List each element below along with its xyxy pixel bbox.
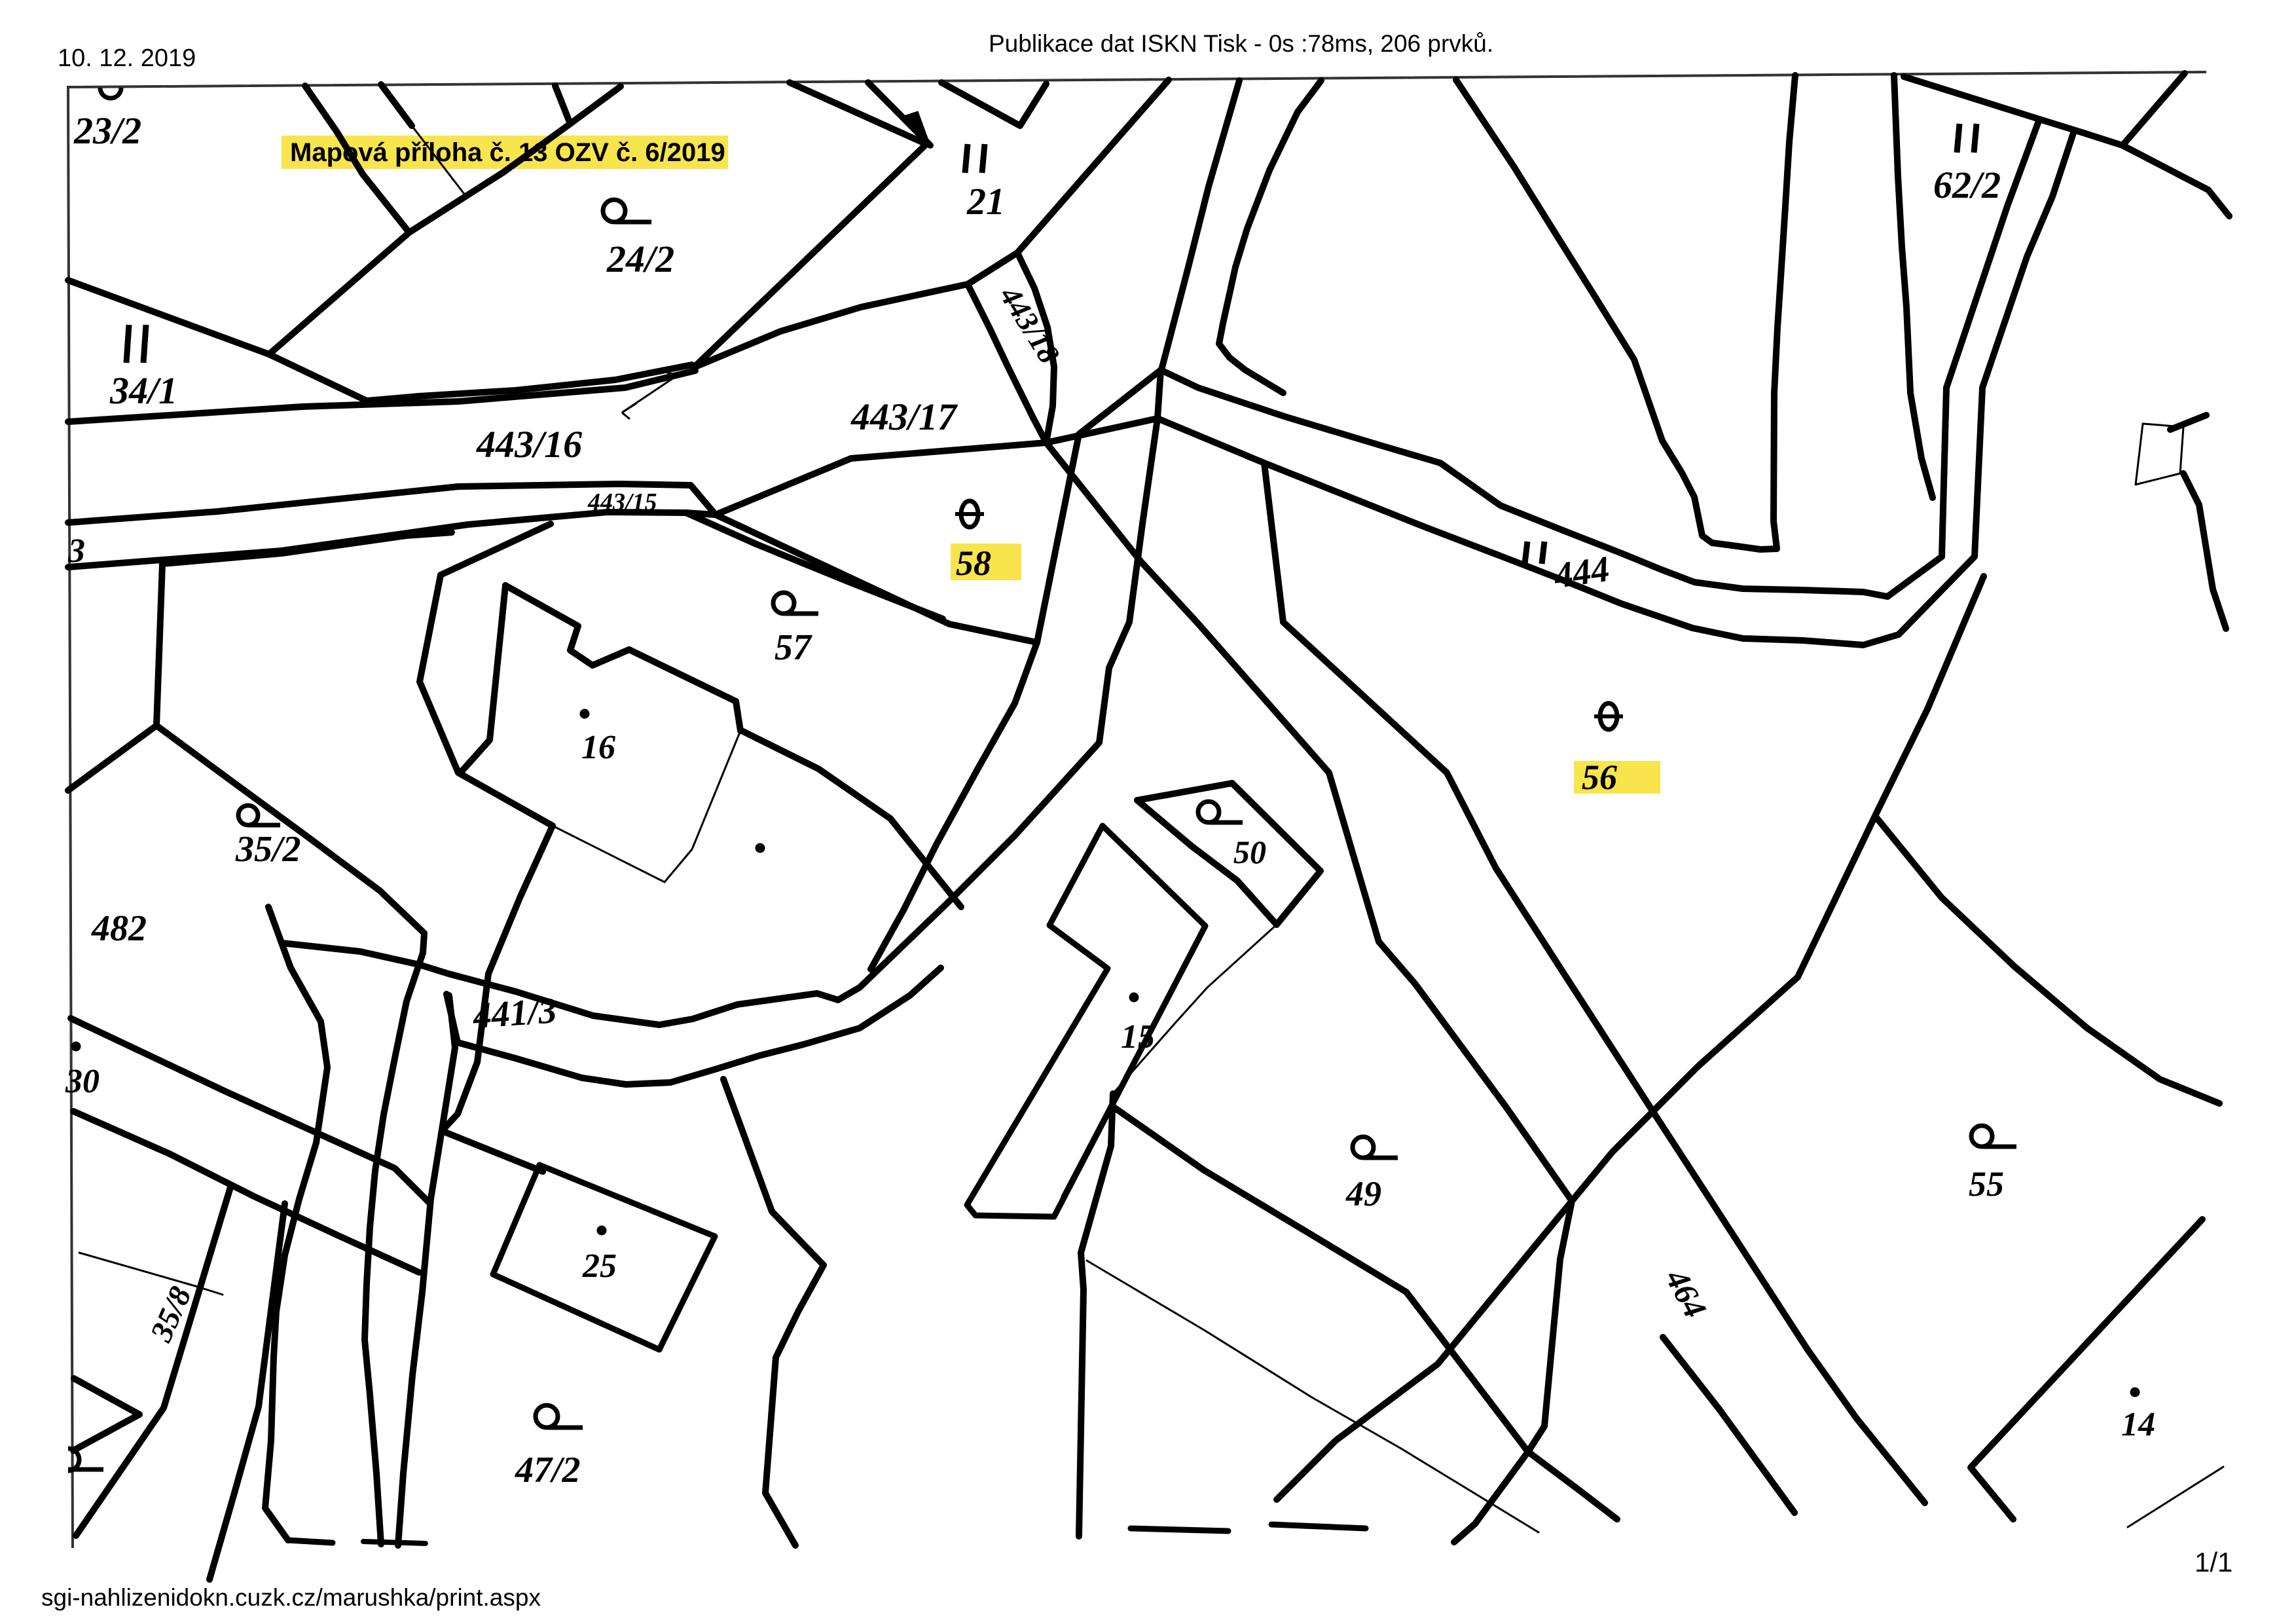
svg-text:30: 30 [65,1063,100,1100]
svg-text:15: 15 [1121,1018,1155,1056]
svg-text:444: 444 [1551,549,1612,597]
svg-text:24/2: 24/2 [606,238,674,280]
svg-text:482: 482 [91,908,147,949]
svg-text:57: 57 [774,627,812,668]
svg-text:47/2: 47/2 [515,1450,581,1490]
svg-text:443/15: 443/15 [587,489,657,516]
svg-text:25: 25 [582,1247,617,1285]
svg-text:10. 12. 2019: 10. 12. 2019 [58,45,196,72]
svg-text:Publikace dat ISKN Tisk - 0s :: Publikace dat ISKN Tisk - 0s :78ms, 206 … [989,30,1493,57]
svg-text:443/16: 443/16 [476,423,582,466]
svg-text:49: 49 [1345,1174,1381,1213]
svg-text:58: 58 [956,544,991,583]
svg-text:441/3: 441/3 [471,990,558,1037]
svg-text:50: 50 [1233,834,1266,870]
svg-text:23/2: 23/2 [73,109,141,152]
svg-text:35/2: 35/2 [235,829,301,870]
svg-text:21: 21 [966,180,1005,223]
svg-text:443/17: 443/17 [850,396,958,438]
svg-text:62/2: 62/2 [1933,164,2001,206]
svg-text:14: 14 [2121,1406,2155,1443]
svg-text:16: 16 [581,729,615,766]
svg-text:56: 56 [1582,758,1617,797]
svg-text:55: 55 [1969,1164,2004,1204]
svg-text:3: 3 [67,532,85,570]
svg-text:sgi-nahlizenidokn.cuzk.cz/maru: sgi-nahlizenidokn.cuzk.cz/marushka/print… [41,1584,541,1611]
svg-text:34/1: 34/1 [109,369,177,412]
svg-text:1/1: 1/1 [2195,1547,2232,1578]
